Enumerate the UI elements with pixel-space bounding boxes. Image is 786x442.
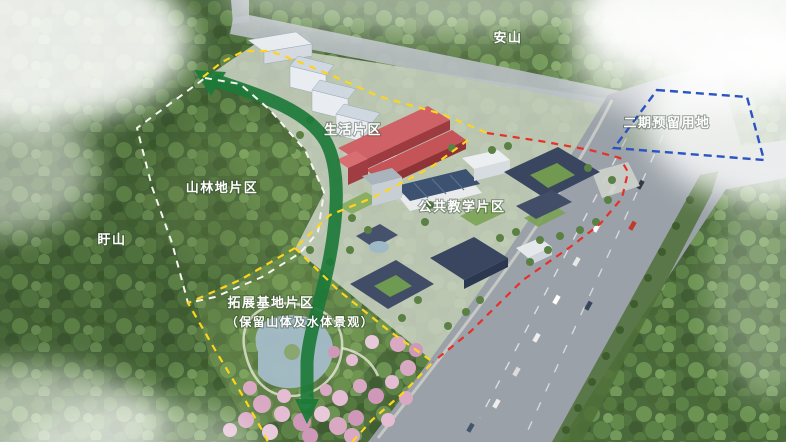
label-expansion-zone: 拓展基地片区 xyxy=(227,295,314,311)
label-teaching-zone: 公共教学片区 xyxy=(418,199,505,215)
label-living-zone: 生活片区 xyxy=(324,122,382,138)
label-xushan: 盱山 xyxy=(97,232,126,248)
label-expansion-note: （保留山体及水体景观） xyxy=(226,314,375,329)
aerial-site-plan: 安山 生活片区 山林地片区 盱山 公共教学片区 二期预留用地 拓展基地片区 （保… xyxy=(0,0,786,442)
masterplan-rendering: 安山 生活片区 山林地片区 盱山 公共教学片区 二期预留用地 拓展基地片区 （保… xyxy=(0,0,786,442)
label-anshan: 安山 xyxy=(493,30,522,46)
label-phase2-zone: 二期预留用地 xyxy=(623,115,710,131)
label-forest-zone: 山林地片区 xyxy=(186,180,259,196)
